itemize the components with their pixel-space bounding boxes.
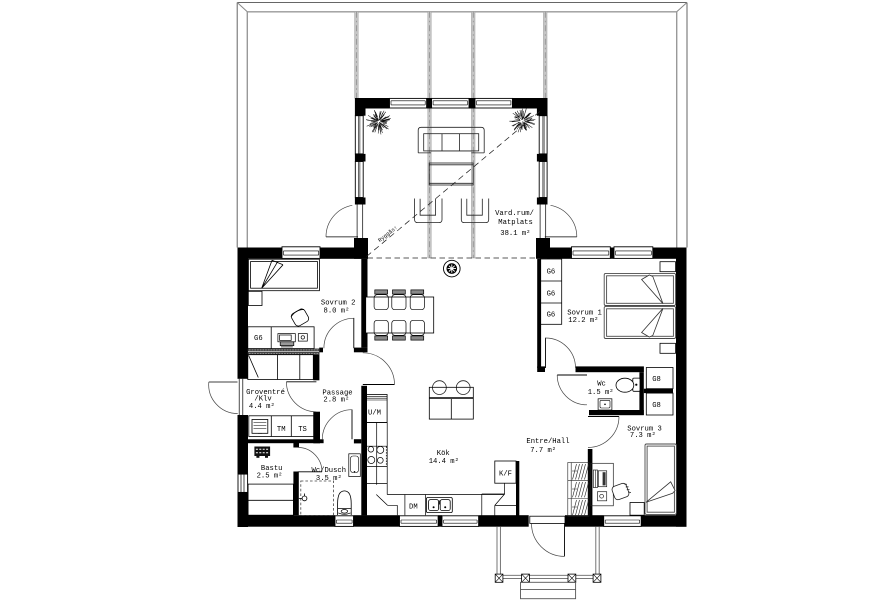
svg-text:38.1 m²: 38.1 m² bbox=[500, 229, 530, 238]
svg-text:G8: G8 bbox=[652, 376, 661, 384]
svg-text:Wc: Wc bbox=[597, 381, 606, 389]
svg-text:7.7 m²: 7.7 m² bbox=[530, 446, 556, 455]
svg-text:Matplats: Matplats bbox=[498, 219, 533, 227]
svg-text:8.0 m²: 8.0 m² bbox=[324, 307, 350, 316]
svg-text:2.8 m²: 2.8 m² bbox=[323, 396, 349, 405]
svg-text:12.2 m²: 12.2 m² bbox=[568, 316, 598, 325]
svg-text:Entre/Hall: Entre/Hall bbox=[526, 438, 569, 446]
svg-text:G6: G6 bbox=[547, 290, 556, 298]
svg-text:Sovrum 2: Sovrum 2 bbox=[321, 299, 356, 307]
svg-text:Kök: Kök bbox=[437, 450, 450, 458]
svg-text:K/F: K/F bbox=[499, 470, 512, 478]
svg-text:G6: G6 bbox=[254, 335, 263, 343]
svg-text:7.3 m²: 7.3 m² bbox=[630, 431, 656, 440]
svg-text:3.5 m²: 3.5 m² bbox=[316, 474, 342, 483]
svg-text:TS: TS bbox=[298, 426, 307, 434]
svg-text:Wc/Dusch: Wc/Dusch bbox=[312, 467, 347, 475]
svg-text:Vard.rum/: Vard.rum/ bbox=[495, 210, 534, 218]
svg-text:TM: TM bbox=[277, 426, 286, 434]
svg-text:1.5 m²: 1.5 m² bbox=[588, 388, 614, 397]
svg-text:14.4 m²: 14.4 m² bbox=[429, 457, 459, 466]
svg-text:G8: G8 bbox=[652, 402, 661, 410]
svg-text:G6: G6 bbox=[547, 312, 556, 320]
svg-text:U/M: U/M bbox=[368, 410, 381, 418]
svg-text:4.4 m²: 4.4 m² bbox=[249, 402, 275, 411]
svg-text:G6: G6 bbox=[547, 268, 556, 276]
svg-text:2.5 m²: 2.5 m² bbox=[257, 472, 283, 481]
svg-text:DM: DM bbox=[409, 504, 418, 512]
